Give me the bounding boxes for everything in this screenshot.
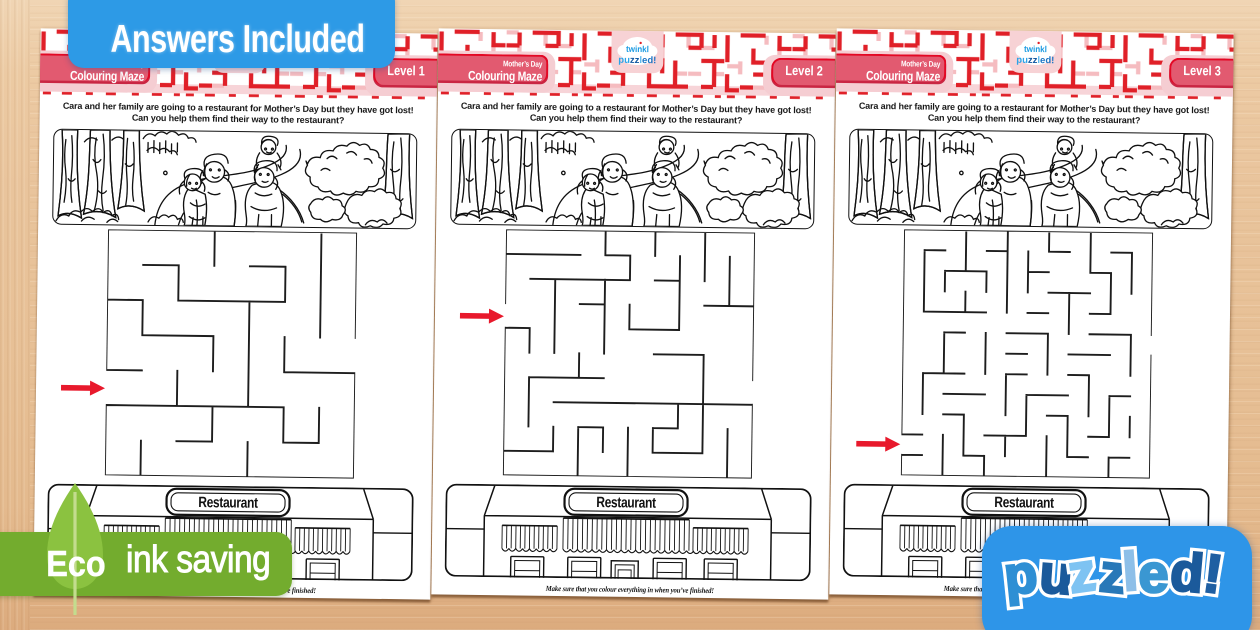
svg-text:twinkl: twinkl: [1023, 44, 1046, 55]
svg-text:p: p: [1001, 544, 1040, 607]
svg-text:l: l: [1121, 542, 1140, 603]
svg-text:Restaurant: Restaurant: [596, 493, 656, 510]
svg-text:twinkl: twinkl: [625, 44, 648, 55]
svg-text:Restaurant: Restaurant: [198, 493, 258, 510]
svg-text:puzzled!: puzzled!: [1016, 55, 1054, 66]
svg-text:e: e: [1138, 544, 1168, 604]
svg-text:puzzled!: puzzled!: [618, 55, 656, 66]
svg-text:Restaurant: Restaurant: [994, 493, 1054, 510]
